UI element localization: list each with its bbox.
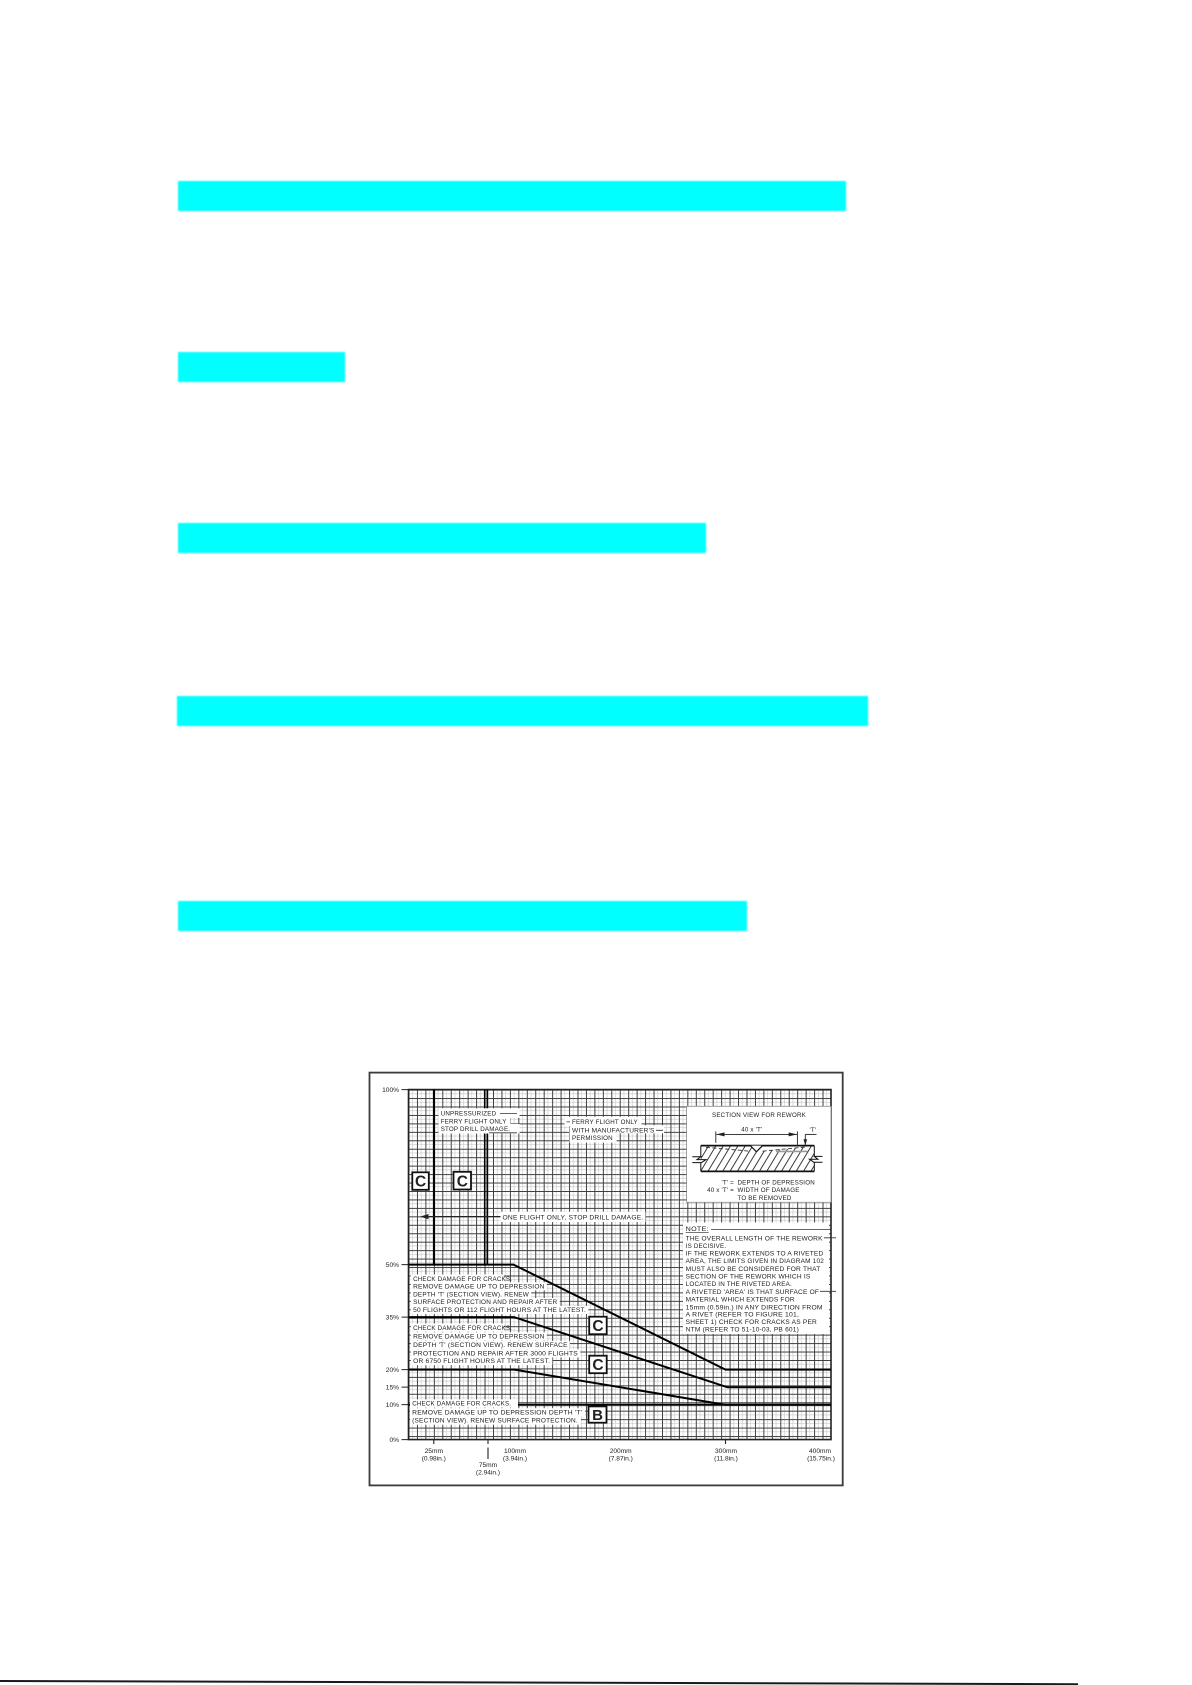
svg-text:C: C <box>592 1357 603 1374</box>
svg-text:C: C <box>457 1173 468 1190</box>
svg-text:CHECK DAMAGE FOR CRACKS.: CHECK DAMAGE FOR CRACKS. <box>413 1325 512 1332</box>
svg-text:200mm: 200mm <box>610 1448 632 1455</box>
svg-text:A RIVETED 'AREA' IS THAT SURFA: A RIVETED 'AREA' IS THAT SURFACE OF <box>686 1289 819 1296</box>
svg-text:NOTE:: NOTE: <box>686 1226 709 1233</box>
svg-text:OR 6750 FLIGHT HOURS AT THE LA: OR 6750 FLIGHT HOURS AT THE LATEST. <box>413 1358 550 1365</box>
svg-text:50 FLIGHTS OR 112 FLIGHT HOURS: 50 FLIGHTS OR 112 FLIGHT HOURS AT THE LA… <box>413 1307 586 1314</box>
svg-text:REMOVE DAMAGE UP TO DEPRESSION: REMOVE DAMAGE UP TO DEPRESSION <box>413 1284 544 1291</box>
svg-text:FERRY FLIGHT ONLY: FERRY FLIGHT ONLY <box>441 1118 507 1125</box>
svg-text:IF THE REWORK EXTENDS TO A RIV: IF THE REWORK EXTENDS TO A RIVETED <box>686 1251 824 1258</box>
svg-text:B: B <box>592 1407 603 1424</box>
svg-text:SURFACE PROTECTION AND REPAIR: SURFACE PROTECTION AND REPAIR AFTER <box>413 1299 558 1306</box>
svg-text:PROTECTION AND REPAIR AFTER 30: PROTECTION AND REPAIR AFTER 3000 FLIGHTS <box>413 1350 578 1357</box>
svg-text:100mm: 100mm <box>504 1448 526 1455</box>
svg-text:REMOVE DAMAGE UP TO DEPRESSION: REMOVE DAMAGE UP TO DEPRESSION DEPTH 'T' <box>412 1409 582 1416</box>
svg-text:(2.94in.): (2.94in.) <box>476 1470 500 1477</box>
svg-text:(7.87in.): (7.87in.) <box>609 1456 633 1463</box>
svg-text:40 x 'T' =: 40 x 'T' = <box>707 1187 734 1194</box>
svg-text:40 x 'T': 40 x 'T' <box>741 1127 762 1134</box>
svg-text:DEPTH 'T' (SECTION VIEW). RENE: DEPTH 'T' (SECTION VIEW). RENEW SURFACE <box>413 1342 568 1349</box>
svg-text:UNPRESSURIZED: UNPRESSURIZED <box>441 1111 497 1118</box>
svg-text:FERRY FLIGHT ONLY: FERRY FLIGHT ONLY <box>572 1119 638 1126</box>
svg-text:THE OVERALL LENGTH OF THE REWO: THE OVERALL LENGTH OF THE REWORK <box>686 1235 824 1242</box>
svg-text:ONE FLIGHT ONLY, STOP DRILL DA: ONE FLIGHT ONLY, STOP DRILL DAMAGE. <box>503 1214 644 1221</box>
svg-text:TO BE REMOVED: TO BE REMOVED <box>738 1195 792 1202</box>
svg-text:75mm: 75mm <box>479 1462 498 1469</box>
svg-text:AREA, THE LIMITS GIVEN IN DIAG: AREA, THE LIMITS GIVEN IN DIAGRAM 102 <box>686 1258 825 1265</box>
svg-text:DEPTH OF DEPRESSION: DEPTH OF DEPRESSION <box>738 1179 815 1186</box>
svg-text:35%: 35% <box>386 1315 399 1322</box>
svg-text:MUST ALSO BE CONSIDERED FOR TH: MUST ALSO BE CONSIDERED FOR THAT <box>686 1266 821 1273</box>
svg-text:IS DECISIVE.: IS DECISIVE. <box>686 1243 727 1250</box>
svg-text:(0.98in.): (0.98in.) <box>422 1456 446 1463</box>
svg-text:WIDTH OF DAMAGE: WIDTH OF DAMAGE <box>738 1187 800 1194</box>
svg-text:50%: 50% <box>386 1262 399 1269</box>
svg-text:C: C <box>415 1174 426 1191</box>
svg-text:(SECTION VIEW). RENEW SURFACE: (SECTION VIEW). RENEW SURFACE PROTECTION… <box>412 1418 578 1425</box>
svg-text:CHECK DAMAGE FOR CRACKS.: CHECK DAMAGE FOR CRACKS. <box>412 1401 511 1408</box>
svg-text:STOP DRILL DAMAGE.: STOP DRILL DAMAGE. <box>441 1126 511 1133</box>
svg-text:'T': 'T' <box>810 1127 817 1134</box>
svg-text:NTM (REFER TO 51-10-03, PB 601: NTM (REFER TO 51-10-03, PB 601) <box>686 1327 799 1334</box>
svg-text:REMOVE DAMAGE UP TO DEPRESSION: REMOVE DAMAGE UP TO DEPRESSION <box>413 1334 544 1341</box>
svg-text:100%: 100% <box>382 1087 399 1094</box>
svg-text:SECTION OF THE REWORK WHICH IS: SECTION OF THE REWORK WHICH IS <box>686 1274 811 1281</box>
svg-text:25mm: 25mm <box>425 1448 444 1455</box>
svg-text:CHECK DAMAGE FOR CRACKS.: CHECK DAMAGE FOR CRACKS. <box>413 1276 512 1283</box>
svg-text:(15.75in.): (15.75in.) <box>807 1456 835 1463</box>
svg-text:DEPTH 'T' (SECTION VIEW). RENE: DEPTH 'T' (SECTION VIEW). RENEW <box>413 1291 529 1298</box>
svg-text:MATERIAL WHICH EXTENDS FOR: MATERIAL WHICH EXTENDS FOR <box>686 1297 795 1304</box>
svg-text:WITH MANUFACTURER'S: WITH MANUFACTURER'S <box>572 1128 655 1135</box>
svg-text:SECTION VIEW FOR REWORK: SECTION VIEW FOR REWORK <box>712 1112 807 1119</box>
svg-text:400mm: 400mm <box>809 1448 831 1455</box>
svg-text:15mm (0.59in.) IN ANY DIRECTIO: 15mm (0.59in.) IN ANY DIRECTION FROM <box>686 1305 823 1312</box>
svg-text:15%: 15% <box>386 1385 399 1392</box>
svg-text:PERMISSION: PERMISSION <box>572 1135 613 1142</box>
svg-text:A RIVET (REFER TO FIGURE 101,: A RIVET (REFER TO FIGURE 101, <box>686 1312 799 1319</box>
svg-text:(11.8in.): (11.8in.) <box>714 1456 738 1463</box>
svg-text:10%: 10% <box>386 1402 399 1409</box>
svg-text:(3.94in.): (3.94in.) <box>503 1456 527 1463</box>
svg-text:C: C <box>592 1318 603 1335</box>
svg-text:0%: 0% <box>389 1437 399 1444</box>
svg-text:'T' =: 'T' = <box>722 1179 735 1186</box>
svg-text:SHEET 1) CHECK FOR CRACKS AS P: SHEET 1) CHECK FOR CRACKS AS PER <box>686 1319 818 1326</box>
svg-text:LOCATED IN THE RIVETED AREA.: LOCATED IN THE RIVETED AREA. <box>686 1281 792 1288</box>
svg-text:300mm: 300mm <box>715 1448 737 1455</box>
svg-text:20%: 20% <box>386 1367 399 1374</box>
